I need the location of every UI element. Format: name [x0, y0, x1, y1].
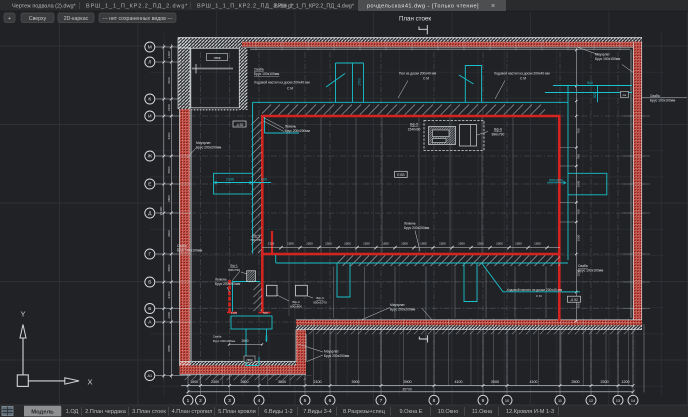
svg-text:Брус 100x100мм: Брус 100x100мм	[254, 72, 280, 76]
svg-text:1500: 1500	[287, 241, 294, 245]
svg-text:3900: 3900	[404, 380, 412, 384]
svg-text:2: 2	[199, 398, 202, 404]
svg-text:600: 600	[261, 178, 267, 182]
svg-text:В: В	[148, 280, 151, 286]
svg-text:рочдельская41.dwg - [Только чт: рочдельская41.dwg - [Только чтение]	[367, 3, 479, 9]
svg-text:ВРШ_1_1_П_КР2.2_ПД_2.dwg*: ВРШ_1_1_П_КР2.2_ПД_2.dwg*	[86, 3, 188, 9]
svg-text:1200: 1200	[167, 311, 171, 318]
svg-text:Пол из доски 200x40 мм: Пол из доски 200x40 мм	[399, 72, 437, 76]
svg-text:Брус 200x200мм: Брус 200x200мм	[404, 226, 430, 230]
svg-text:Сваба: Сваба	[254, 68, 264, 72]
svg-text:Брус 150x150мм: Брус 150x150мм	[595, 57, 621, 61]
svg-text:Ходовой настил из доски 200x40: Ходовой настил из доски 200x40 мм	[254, 81, 310, 85]
svg-text:+: +	[8, 16, 11, 22]
svg-text:Б: Б	[148, 306, 151, 312]
svg-text:Брус 200x200мм: Брус 200x200мм	[324, 354, 350, 358]
svg-text:3: 3	[228, 398, 231, 404]
svg-text:Е.ВЗ: Е.ВЗ	[397, 173, 404, 177]
svg-text:2200: 2200	[601, 380, 609, 384]
svg-text:500: 500	[263, 311, 268, 315]
svg-text:X: X	[87, 377, 92, 386]
svg-text:Г: Г	[148, 252, 151, 258]
svg-text:750: 750	[577, 128, 581, 133]
svg-text:Вф-3: Вф-3	[316, 296, 324, 300]
svg-text:3780: 3780	[167, 345, 171, 352]
svg-text:С М: С М	[423, 77, 429, 81]
svg-text:3.План стоек: 3.План стоек	[132, 409, 166, 415]
svg-text:М: М	[148, 45, 152, 51]
svg-text:1500: 1500	[382, 241, 389, 245]
svg-text:14: 14	[631, 399, 635, 403]
svg-text:1500: 1500	[534, 241, 541, 245]
svg-text:6: 6	[329, 398, 332, 404]
svg-text:2D-каркас: 2D-каркас	[64, 16, 89, 22]
svg-text:1200: 1200	[622, 380, 630, 384]
svg-text:4.План стропил: 4.План стропил	[172, 409, 213, 415]
svg-text:С М: С М	[520, 77, 526, 81]
svg-text:Брус 100x100мм: Брус 100x100мм	[213, 339, 235, 343]
svg-text:8: 8	[433, 398, 436, 404]
svg-text:1500: 1500	[439, 241, 446, 245]
svg-text:1500: 1500	[344, 241, 351, 245]
svg-text:2100: 2100	[226, 178, 234, 182]
svg-text:1500: 1500	[306, 241, 313, 245]
svg-text:Мауэрлат: Мауэрлат	[324, 350, 339, 354]
svg-text:7: 7	[380, 398, 383, 404]
svg-text:1500: 1500	[458, 241, 465, 245]
svg-text:2100: 2100	[314, 380, 322, 384]
svg-text:920: 920	[593, 92, 597, 98]
svg-text:Л: Л	[148, 60, 151, 66]
svg-text:1500: 1500	[363, 241, 370, 245]
svg-text:Вф-2: Вф-2	[292, 300, 300, 304]
svg-text:6.Виды 1-2: 6.Виды 1-2	[264, 409, 292, 415]
svg-text:700x750: 700x750	[250, 238, 262, 242]
svg-text:13: 13	[616, 399, 620, 403]
svg-text:-0.92: -0.92	[570, 298, 578, 302]
svg-text:750: 750	[577, 303, 581, 308]
svg-text:2800: 2800	[167, 264, 171, 271]
svg-text:11.Окна: 11.Окна	[472, 409, 493, 415]
svg-text:4: 4	[258, 398, 261, 404]
svg-text:11: 11	[558, 399, 562, 403]
svg-text:2500: 2500	[167, 195, 171, 202]
svg-text:800x800: 800x800	[290, 304, 302, 308]
svg-text:2100: 2100	[167, 104, 171, 111]
svg-text:1329: 1329	[268, 241, 275, 245]
svg-text:7.Виды 3-4: 7.Виды 3-4	[303, 409, 331, 415]
svg-text:1000: 1000	[190, 380, 198, 384]
svg-text:2500: 2500	[572, 380, 580, 384]
svg-text:8.Разрезы+спец: 8.Разрезы+спец	[343, 409, 386, 415]
svg-text:Брус 200x200мм: Брус 200x200мм	[196, 146, 222, 150]
svg-text:Мауэрлат: Мауэрлат	[196, 141, 211, 145]
svg-text:×: ×	[491, 3, 495, 10]
svg-text:600x600: 600x600	[549, 179, 563, 183]
svg-text:Лежень: Лежень	[404, 222, 416, 226]
svg-text:750: 750	[577, 154, 581, 159]
svg-text:--- нет сохраненных видов ---: --- нет сохраненных видов ---	[102, 16, 172, 22]
svg-text:А1: А1	[147, 374, 152, 378]
svg-text:3400: 3400	[167, 132, 171, 139]
svg-text:Сверху: Сверху	[29, 16, 47, 22]
svg-text:Сваба: Сваба	[177, 244, 187, 248]
svg-text:1500: 1500	[577, 234, 581, 241]
svg-text:Вф-6: Вф-6	[494, 128, 502, 132]
svg-text:500x790: 500x790	[228, 268, 240, 272]
svg-text:1700: 1700	[358, 78, 362, 86]
svg-text:Ж: Ж	[148, 154, 153, 160]
svg-text:890x790: 890x790	[492, 132, 505, 136]
svg-text:1500: 1500	[325, 241, 332, 245]
svg-text:Вф-4: Вф-4	[252, 234, 260, 238]
svg-text:Сваба: Сваба	[213, 335, 222, 339]
svg-text:4100: 4100	[455, 380, 463, 384]
svg-text:Ходовой настил из доски 200x40: Ходовой настил из доски 200x40 мм	[507, 288, 563, 292]
svg-text:-4.92: -4.92	[236, 123, 244, 127]
svg-text:4100: 4100	[530, 380, 538, 384]
svg-text:1500: 1500	[477, 241, 484, 245]
svg-text:3800: 3800	[278, 380, 286, 384]
svg-text:1120: 1120	[231, 311, 238, 315]
svg-text:И: И	[148, 114, 152, 120]
svg-text:9.Окна Е: 9.Окна Е	[400, 409, 423, 415]
svg-text:Вф-1: Вф-1	[230, 264, 238, 268]
svg-text:2.План чердака: 2.План чердака	[85, 409, 127, 415]
svg-text:Лежень: Лежень	[215, 278, 227, 282]
svg-text:Чертеж подвала (2).dwg*: Чертеж подвала (2).dwg*	[12, 3, 77, 9]
svg-text:Модель: Модель	[31, 409, 54, 415]
svg-text:3900: 3900	[352, 380, 360, 384]
svg-text:2400: 2400	[167, 291, 171, 298]
svg-text:Брус 200x200мм: Брус 200x200мм	[390, 308, 416, 312]
svg-text:Брус 200x200мм: Брус 200x200мм	[285, 129, 311, 133]
svg-text:25400: 25400	[159, 206, 163, 215]
svg-text:пж: пж	[623, 93, 627, 97]
svg-text:Брус 200x200мм: Брус 200x200мм	[215, 282, 241, 286]
svg-text:10.Окно: 10.Окно	[438, 409, 459, 415]
svg-text:Брус 100x100мм: Брус 100x100мм	[578, 269, 604, 273]
svg-text:Брус 100x100мм: Брус 100x100мм	[177, 249, 203, 253]
svg-text:750: 750	[577, 209, 581, 214]
svg-text:1400: 1400	[167, 51, 171, 58]
svg-text:3400: 3400	[167, 230, 171, 237]
svg-text:1500: 1500	[401, 241, 408, 245]
svg-text:600: 600	[265, 335, 269, 341]
svg-text:1: 1	[187, 398, 190, 404]
svg-text:12: 12	[589, 399, 593, 403]
svg-text:люк: люк	[246, 358, 253, 362]
svg-text:1500: 1500	[496, 241, 503, 245]
svg-text:1500: 1500	[515, 241, 522, 245]
svg-text:К: К	[148, 97, 151, 103]
svg-text:2300: 2300	[211, 380, 219, 384]
svg-text:12.Кровля И-М 1-3: 12.Кровля И-М 1-3	[506, 409, 554, 415]
svg-text:Ходовой настил из доски 200x40: Ходовой настил из доски 200x40 мм	[494, 72, 550, 76]
svg-text:Брус 100x100мм: Брус 100x100мм	[650, 99, 676, 103]
svg-text:5: 5	[304, 398, 307, 404]
svg-text:Лежень: Лежень	[285, 125, 297, 129]
svg-text:1500: 1500	[420, 241, 427, 245]
svg-text:С М: С М	[287, 86, 293, 90]
svg-text:9: 9	[482, 398, 485, 404]
svg-text:люк: люк	[213, 55, 220, 60]
svg-text:Е: Е	[148, 182, 151, 188]
svg-text:5.План кровли: 5.План кровли	[218, 409, 256, 415]
svg-text:2500: 2500	[167, 166, 171, 173]
svg-text:План стоек: План стоек	[399, 16, 431, 23]
svg-text:35700: 35700	[402, 388, 412, 392]
svg-text:2600: 2600	[241, 380, 249, 384]
svg-text:Сваба: Сваба	[650, 94, 660, 98]
svg-text:1540x90: 1540x90	[408, 127, 421, 131]
svg-text:3100: 3100	[167, 77, 171, 84]
svg-text:2600: 2600	[241, 339, 248, 343]
svg-text:С М: С М	[536, 294, 542, 298]
svg-text:1500: 1500	[577, 180, 581, 187]
svg-text:Вф-5: Вф-5	[410, 123, 418, 127]
svg-text:1.ОД: 1.ОД	[66, 409, 79, 415]
svg-text:ВРШ_1_1_П_КР2.2_ПД_4.dwg*: ВРШ_1_1_П_КР2.2_ПД_4.dwg*	[274, 3, 355, 9]
svg-text:940: 940	[587, 81, 593, 85]
svg-text:Сваба: Сваба	[578, 264, 588, 268]
svg-text:Y: Y	[20, 310, 25, 319]
svg-text:2000: 2000	[491, 380, 499, 384]
svg-text:950x1070: 950x1070	[313, 300, 327, 304]
svg-text:Мауэрлат: Мауэрлат	[390, 303, 405, 307]
svg-text:10: 10	[505, 399, 509, 403]
